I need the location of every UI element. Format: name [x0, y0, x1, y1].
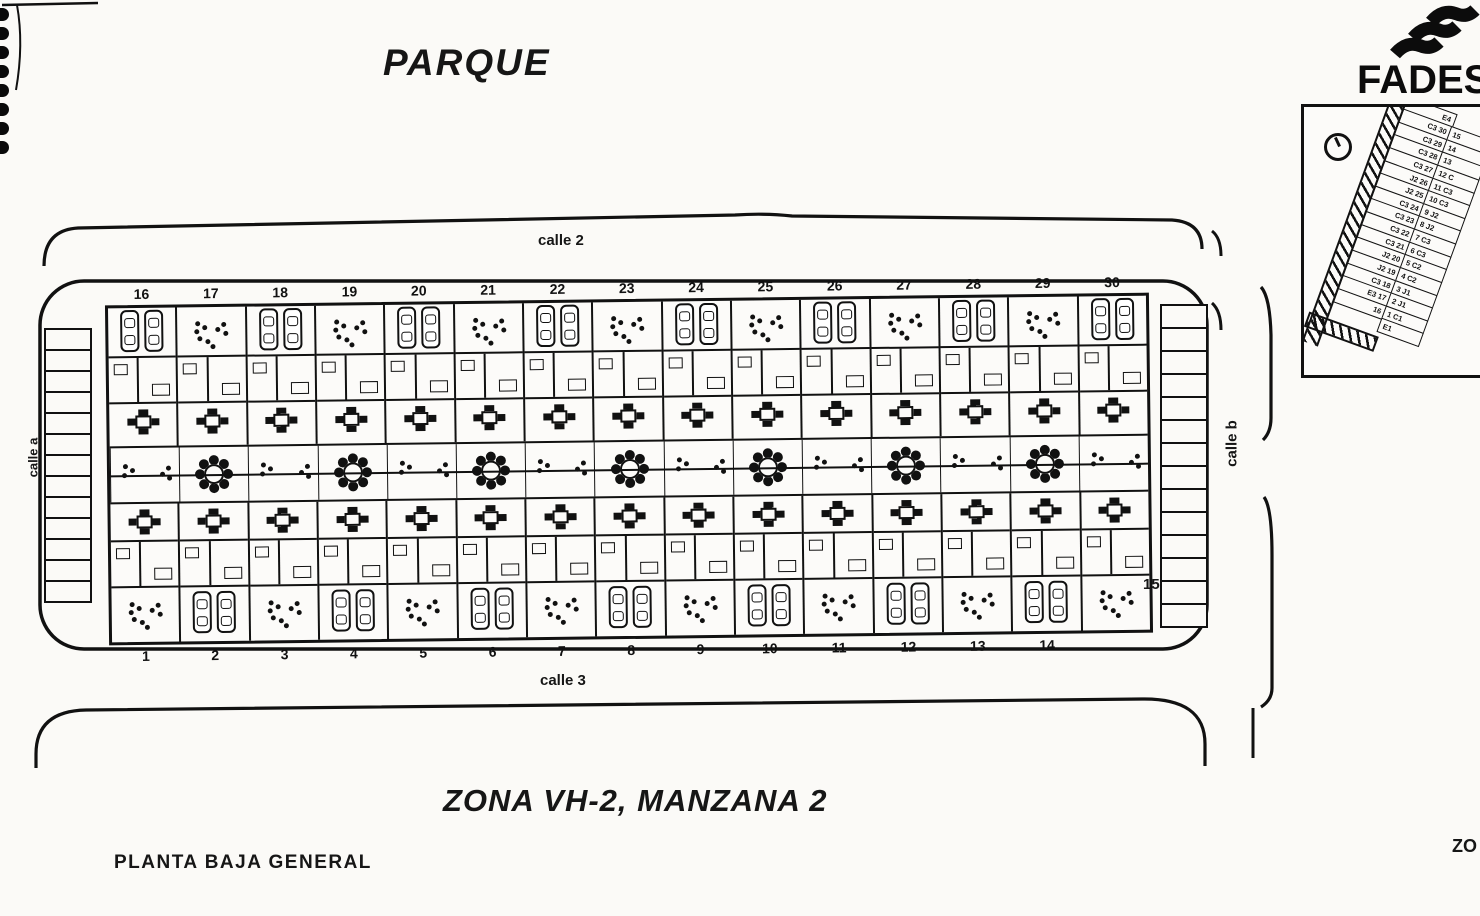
fixture [878, 539, 892, 550]
car-icon [609, 586, 629, 628]
house-unit: 27 [869, 298, 940, 437]
room [278, 356, 316, 400]
rear-patio [248, 402, 316, 439]
plant-icon [1092, 452, 1097, 457]
fixture [1125, 556, 1143, 568]
unit-number-15: 15 [1143, 576, 1160, 593]
fixture [876, 355, 890, 366]
plant-icon [437, 468, 442, 473]
room [386, 355, 417, 399]
parking-stall [1160, 580, 1208, 605]
rooms [109, 358, 177, 405]
fixture [1053, 373, 1071, 385]
fixture [322, 362, 336, 373]
room [594, 352, 625, 396]
room [555, 352, 593, 396]
room [485, 353, 523, 397]
room [1081, 530, 1112, 574]
room [349, 539, 387, 583]
parking-stall [44, 433, 92, 456]
table-icon [968, 505, 984, 518]
garden-cell [663, 441, 733, 496]
parking-stall [44, 412, 92, 435]
garage-bay [874, 576, 942, 627]
table-icon [828, 407, 844, 420]
room [733, 350, 764, 394]
rooms [1010, 347, 1078, 394]
parking-stall [44, 454, 92, 477]
round-table-icon [204, 464, 224, 484]
table-icon [275, 514, 291, 527]
house-unit: 3 [247, 502, 318, 641]
patio-area [666, 579, 734, 630]
plant-icon [493, 324, 498, 329]
room [1012, 531, 1043, 575]
plant-icon [1027, 311, 1032, 316]
rooms [943, 529, 1011, 576]
rooms [386, 354, 454, 401]
room [596, 536, 627, 580]
table-icon [552, 510, 568, 523]
table-icon [691, 509, 707, 522]
rooms [804, 531, 872, 578]
fixture [393, 545, 407, 556]
house-unit: 7 [524, 498, 595, 637]
car-icon [356, 589, 376, 631]
plant-icon [1047, 317, 1052, 322]
unit-number: 27 [870, 276, 938, 293]
room [418, 538, 456, 582]
rooms [457, 535, 525, 582]
room [1040, 347, 1078, 391]
table-icon [483, 511, 499, 524]
fixture [1015, 353, 1029, 364]
garden-cell [248, 446, 318, 501]
parking-stall [1160, 442, 1208, 467]
unit-number: 14 [1013, 636, 1081, 653]
fadesa-flag-icon [1389, 2, 1480, 60]
rear-patio [457, 499, 525, 536]
table-icon [274, 414, 290, 427]
house-unit: 4 [316, 501, 387, 640]
car-icon [910, 582, 930, 624]
rear-patio [386, 400, 454, 437]
garden-cell [387, 444, 457, 499]
plant-icon [760, 332, 765, 337]
garden-cell [594, 442, 664, 497]
car-icon [120, 310, 140, 352]
parking-stall [44, 391, 92, 414]
plant-icon [1129, 460, 1134, 465]
fixture [252, 362, 266, 373]
fixture [640, 562, 658, 574]
plant-icon [473, 318, 478, 323]
rear-patio [664, 397, 732, 434]
plant-icon [130, 602, 135, 607]
rear-patio [317, 401, 385, 438]
table-icon [551, 410, 567, 423]
rear-patio [942, 493, 1010, 530]
garage-bay [735, 578, 803, 629]
rooms [111, 540, 179, 587]
parking-stall [44, 475, 92, 498]
rooms [388, 536, 456, 583]
rear-patio [180, 503, 248, 540]
room [940, 348, 971, 392]
room [696, 535, 734, 579]
garden-cell [871, 438, 941, 493]
car-icon [699, 303, 719, 345]
room [1010, 347, 1041, 391]
keyplan-strip: E4C3 3015C3 2914C3 2813C3 2712 CJ2 2611 … [1329, 104, 1480, 348]
car-icon [217, 591, 237, 633]
room [626, 536, 664, 580]
room [871, 349, 902, 393]
unit-number: 26 [801, 277, 869, 294]
rear-patio [456, 399, 524, 436]
table-icon [829, 507, 845, 520]
rear-patio [596, 498, 664, 535]
parking-row-right [1160, 306, 1208, 628]
rooms [594, 352, 662, 399]
room [111, 542, 142, 586]
plant-icon [704, 601, 709, 606]
unit-number: 22 [524, 280, 592, 297]
table-icon [690, 409, 706, 422]
parking-row-left [44, 330, 92, 603]
car-icon [772, 584, 792, 626]
table-icon [620, 409, 636, 422]
house-unit: 26 [799, 299, 870, 438]
plant-icon [354, 325, 359, 330]
room [319, 539, 350, 583]
patio-area [871, 298, 939, 349]
plant-icon [909, 319, 914, 324]
car-icon [332, 589, 352, 631]
unit-number: 24 [662, 279, 730, 296]
plant-icon [160, 472, 165, 477]
rear-patio [388, 500, 456, 537]
fixture [668, 357, 682, 368]
parking-stall [44, 580, 92, 603]
rooms [663, 351, 731, 398]
house-unit: 25 [730, 300, 801, 439]
room [557, 536, 595, 580]
fixture [114, 364, 128, 375]
car-icon [748, 584, 768, 626]
car-icon [470, 588, 490, 630]
table-icon [1107, 503, 1123, 516]
plant-icon [140, 620, 145, 625]
parking-stall [1160, 373, 1208, 398]
garden-cell [456, 443, 526, 498]
cropped-right-label: ZO [1452, 836, 1477, 857]
room [873, 533, 904, 577]
rear-patio [872, 394, 940, 431]
unit-number: 7 [528, 642, 596, 659]
rooms [873, 530, 941, 577]
plant-icon [833, 611, 838, 616]
unit-number: 13 [944, 637, 1012, 654]
fixture [530, 359, 544, 370]
rooms [802, 349, 870, 396]
rear-patio [525, 398, 593, 435]
house-unit: 6 [455, 499, 526, 638]
plant-icon [823, 594, 828, 599]
garden-cell [525, 442, 595, 497]
table-icon [413, 512, 429, 525]
house-unit: 1 [110, 504, 179, 643]
parking-stall [1160, 534, 1208, 559]
fixture [671, 541, 685, 552]
parking-stall [1160, 603, 1208, 628]
fixture [460, 360, 474, 371]
parking-stall [44, 328, 92, 351]
house-unit: 21 [453, 303, 524, 442]
table-icon [1036, 404, 1052, 417]
car-icon [494, 587, 514, 629]
fixture [116, 548, 130, 559]
car-icon [1091, 298, 1111, 340]
fixture [324, 546, 338, 557]
room [1079, 346, 1110, 390]
plan-subtitle: PLANTA BAJA GENERAL [114, 852, 372, 874]
plant-icon [1100, 590, 1105, 595]
room [388, 539, 419, 583]
table-icon [344, 513, 360, 526]
parking-stall [44, 496, 92, 519]
house-unit: 8 [594, 498, 665, 637]
room [802, 350, 833, 394]
fixture [917, 558, 935, 570]
unit-number: 16 [108, 286, 176, 303]
garden-cell [940, 437, 1010, 492]
fixture [224, 567, 242, 579]
garage-bay [1079, 296, 1147, 347]
patio-area [527, 580, 595, 631]
room [834, 533, 872, 577]
table-icon [898, 406, 914, 419]
rooms [665, 533, 733, 580]
room [488, 537, 526, 581]
unit-number: 25 [732, 278, 800, 295]
parking-stall [1160, 419, 1208, 444]
room [765, 534, 803, 578]
room [247, 356, 278, 400]
room [735, 534, 766, 578]
unit-number: 9 [667, 641, 735, 658]
rear-patio [594, 398, 662, 435]
plant-icon [195, 321, 200, 326]
plant-icon [684, 595, 689, 600]
patio-area [593, 302, 661, 353]
fixture [1056, 557, 1074, 569]
house-unit: 13 [940, 493, 1011, 632]
round-table-icon [1035, 454, 1055, 474]
unit-number: 2 [181, 647, 249, 664]
room [416, 354, 454, 398]
rear-patio [1081, 492, 1149, 529]
room [109, 358, 140, 402]
unit-number: 3 [251, 646, 319, 663]
plant-icon [268, 600, 273, 605]
car-icon [421, 306, 441, 348]
house-unit: 9 [663, 497, 734, 636]
house-unit: 5 [386, 500, 457, 639]
garage-bay [108, 308, 176, 359]
table-icon [412, 412, 428, 425]
unit-number: 21 [454, 281, 522, 298]
plant-icon [261, 462, 266, 467]
plant-icon [299, 470, 304, 475]
rear-patio [109, 404, 177, 441]
fixture [1123, 372, 1141, 384]
car-icon [675, 303, 695, 345]
plant-icon [278, 618, 283, 623]
fixture [946, 354, 960, 365]
car-icon [1025, 581, 1045, 623]
house-unit: 29 [1007, 297, 1078, 436]
fixture [463, 544, 477, 555]
car-icon [536, 305, 556, 347]
rear-patio [804, 495, 872, 532]
plant-icon [676, 457, 681, 462]
garden-cell [317, 445, 387, 500]
table-icon [1105, 403, 1121, 416]
garage-bay [524, 302, 592, 353]
house-unit: 24 [661, 301, 732, 440]
patio-area [316, 305, 384, 356]
parking-stall [44, 370, 92, 393]
plant-icon [344, 337, 349, 342]
garage-bay [663, 301, 731, 352]
patio-area [455, 303, 523, 354]
car-icon [813, 302, 833, 344]
room [973, 531, 1011, 575]
rooms [525, 352, 593, 399]
brand-name: FADES [1357, 58, 1480, 103]
patio-area [805, 577, 873, 628]
table-icon [482, 411, 498, 424]
fixture [707, 377, 725, 389]
fixture [848, 559, 866, 571]
room [665, 535, 696, 579]
fixture [1084, 352, 1098, 363]
fixture [1017, 537, 1031, 548]
car-icon [976, 300, 996, 342]
plant-icon [899, 331, 904, 336]
fixture [776, 376, 794, 388]
plant-icon [714, 465, 719, 470]
house-unit: 2 [178, 503, 249, 642]
fixture [638, 378, 656, 390]
room [455, 354, 486, 398]
room [250, 540, 281, 584]
rooms [1081, 528, 1149, 575]
zone-title: ZONA VH-2, MANZANA 2 [443, 783, 828, 819]
plant-icon [953, 454, 958, 459]
fixture [532, 543, 546, 554]
room [904, 532, 942, 576]
patio-area [1082, 574, 1150, 625]
room [971, 347, 1009, 391]
room [525, 353, 556, 397]
car-icon [837, 301, 857, 343]
rooms [249, 538, 317, 585]
table-icon [760, 508, 776, 521]
rooms [596, 534, 664, 581]
fixture [183, 363, 197, 374]
parking-stall [1160, 488, 1208, 513]
fixture [291, 382, 309, 394]
plant-icon [483, 336, 488, 341]
fixture [360, 381, 378, 393]
car-icon [193, 591, 213, 633]
room [210, 541, 248, 585]
table-icon [967, 405, 983, 418]
unit-number: 12 [875, 638, 943, 655]
unit-number: 4 [320, 645, 388, 662]
rooms [940, 347, 1008, 394]
plant-icon [334, 320, 339, 325]
parking-stall [1160, 350, 1208, 375]
fixture [709, 561, 727, 573]
fixture [501, 563, 519, 575]
rear-patio [178, 403, 246, 440]
room [663, 351, 694, 395]
rear-patio [802, 395, 870, 432]
parking-stall [1160, 327, 1208, 352]
car-icon [259, 308, 279, 350]
patio-area [111, 586, 179, 637]
room [457, 538, 488, 582]
plant-icon [566, 603, 571, 608]
rooms [180, 539, 248, 586]
rear-patio [873, 494, 941, 531]
parking-stall [1160, 511, 1208, 536]
house-unit: 20 [383, 304, 454, 443]
fixture [809, 540, 823, 551]
rooms [527, 534, 595, 581]
patio-area [177, 307, 245, 358]
plant-icon [611, 316, 616, 321]
plant-icon [632, 322, 637, 327]
plant-icon [427, 604, 432, 609]
car-icon [886, 583, 906, 625]
rear-patio [734, 496, 802, 533]
unit-number: 19 [316, 283, 384, 300]
parking-stall [1160, 396, 1208, 421]
house-unit: 12 [871, 494, 942, 633]
park-label: PARQUE [383, 42, 551, 84]
rear-patio [249, 502, 317, 539]
fixture [185, 547, 199, 558]
fixture [432, 564, 450, 576]
car-icon [1115, 298, 1135, 340]
room [832, 349, 870, 393]
north-indicator-icon [1324, 133, 1352, 161]
fixture [154, 568, 172, 580]
unit-number: 6 [459, 643, 527, 660]
table-icon [1037, 504, 1053, 517]
garden-cell [732, 440, 802, 495]
street-label-calle-2: calle 2 [538, 232, 584, 249]
parking-stall [1160, 304, 1208, 329]
plant-icon [150, 608, 155, 613]
unit-number: 29 [1009, 275, 1077, 292]
table-icon [899, 506, 915, 519]
room [693, 351, 731, 395]
